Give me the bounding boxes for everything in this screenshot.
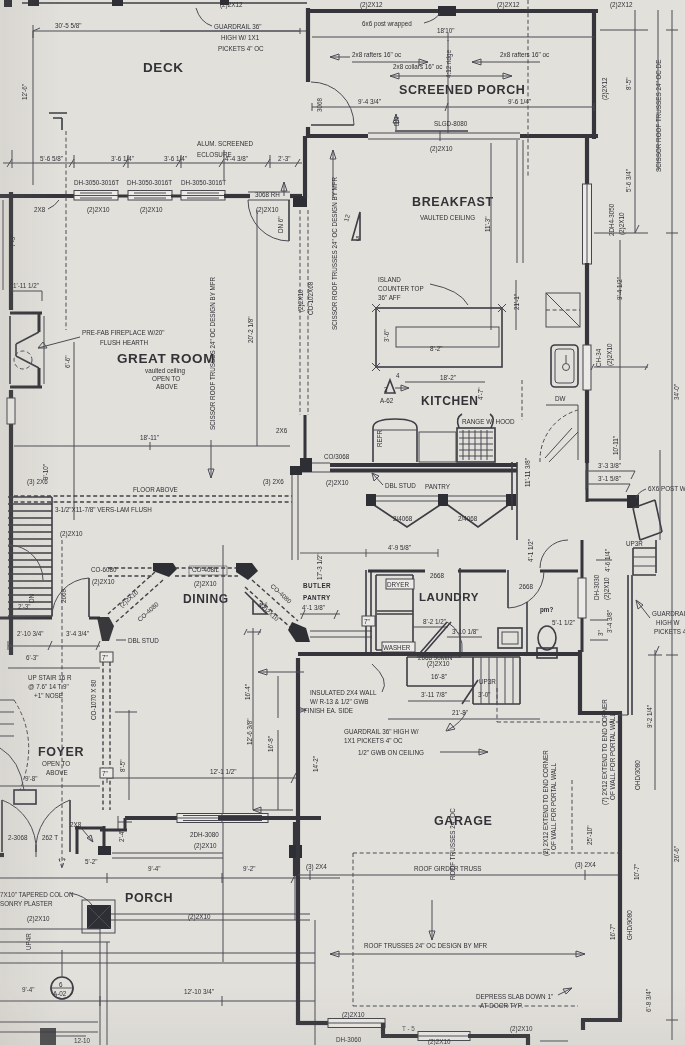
svg-text:3": 3" <box>597 630 604 636</box>
svg-text:KITCHEN: KITCHEN <box>421 394 479 408</box>
svg-text:PORCH: PORCH <box>125 891 173 905</box>
svg-text:(2)2X12: (2)2X12 <box>610 1 633 9</box>
svg-text:3'-6 1/4": 3'-6 1/4" <box>111 155 134 162</box>
svg-text:16'-7": 16'-7" <box>609 924 616 940</box>
svg-text:3'-6": 3'-6" <box>383 329 390 342</box>
svg-text:(2)2X12: (2)2X12 <box>220 1 243 9</box>
svg-text:3'-3 3/8": 3'-3 3/8" <box>598 462 621 469</box>
svg-text:3'-4 3/8": 3'-4 3/8" <box>606 610 613 633</box>
svg-text:(2)2X10: (2)2X10 <box>60 530 83 538</box>
svg-text:CO-408lL: CO-408lL <box>192 566 219 573</box>
svg-text:3'-6 1/4": 3'-6 1/4" <box>164 155 187 162</box>
svg-text:UP3R: UP3R <box>479 678 496 685</box>
svg-text:SCISSOR ROOF TRUSSES 24" OC DE: SCISSOR ROOF TRUSSES 24" OC DESIGN BY MF… <box>209 276 216 430</box>
svg-text:PANTRY: PANTRY <box>425 483 451 490</box>
svg-text:25'-10": 25'-10" <box>586 825 593 845</box>
svg-text:3'-1 5/8": 3'-1 5/8" <box>598 475 621 482</box>
svg-text:2x8 rafters 16" oc: 2x8 rafters 16" oc <box>500 51 549 58</box>
svg-text:CO-6080: CO-6080 <box>91 566 117 573</box>
svg-text:5: 5 <box>356 235 360 242</box>
svg-text:(2)2X10: (2)2X10 <box>194 580 217 588</box>
svg-text:8'-5": 8'-5" <box>625 77 632 90</box>
svg-text:PANTRY: PANTRY <box>303 594 331 601</box>
svg-text:(3) 2X4: (3) 2X4 <box>575 861 596 869</box>
svg-text:16'-8": 16'-8" <box>267 736 274 752</box>
svg-text:12'-6 3/8": 12'-6 3/8" <box>246 718 253 745</box>
svg-text:ABOVE: ABOVE <box>156 383 178 390</box>
svg-text:OF WALL FOR PORTAL WALL: OF WALL FOR PORTAL WALL <box>609 712 616 800</box>
svg-text:20'-2 1/8": 20'-2 1/8" <box>247 316 254 343</box>
svg-text:26'-6": 26'-6" <box>673 846 680 862</box>
svg-text:DH-3050-3016T: DH-3050-3016T <box>181 179 226 186</box>
svg-text:W/ R-13 & 1/2" GWB: W/ R-13 & 1/2" GWB <box>310 698 369 705</box>
svg-text:34'-0": 34'-0" <box>673 384 680 400</box>
svg-text:BREAKFAST: BREAKFAST <box>412 195 494 209</box>
svg-text:45°: 45° <box>258 602 268 609</box>
svg-text:2/4068: 2/4068 <box>393 515 413 522</box>
svg-text:9'-2 1/4": 9'-2 1/4" <box>646 705 653 728</box>
svg-text:PRE-FAB FIREPLACE W/20": PRE-FAB FIREPLACE W/20" <box>82 329 164 336</box>
svg-text:5'-1 1/2": 5'-1 1/2" <box>552 619 575 626</box>
svg-text:3068: 3068 <box>316 97 323 112</box>
svg-text:SCREENED PORCH: SCREENED PORCH <box>399 83 525 97</box>
svg-text:BUTLER: BUTLER <box>303 582 331 589</box>
svg-text:4'-1 1/2": 4'-1 1/2" <box>527 539 534 562</box>
svg-text:OHD/3080: OHD/3080 <box>634 760 641 790</box>
svg-text:1/2" GWB ON CEILING: 1/2" GWB ON CEILING <box>358 749 424 756</box>
svg-text:SLGD-8080: SLGD-8080 <box>434 120 468 127</box>
svg-text:DH-3050-3016T: DH-3050-3016T <box>127 179 172 186</box>
svg-text:9'-2": 9'-2" <box>243 865 256 872</box>
svg-text:A-62: A-62 <box>380 397 394 404</box>
svg-text:OF WALL FOR PORTAL WALL: OF WALL FOR PORTAL WALL <box>550 762 557 850</box>
svg-text:1X1 PICKETS 4" OC: 1X1 PICKETS 4" OC <box>344 737 403 744</box>
svg-text:GUARDRAIL 36": GUARDRAIL 36" <box>214 23 262 30</box>
svg-text:FINISH EA. SIDE: FINISH EA. SIDE <box>304 707 353 714</box>
svg-text:(2)2X10: (2)2X10 <box>430 145 453 153</box>
svg-text:(2)2X10: (2)2X10 <box>87 206 110 214</box>
svg-text:FLUSH HEARTH: FLUSH HEARTH <box>100 339 149 346</box>
svg-text:8'-2": 8'-2" <box>430 345 443 352</box>
svg-text:ROOF TRUSSES 24" OC DESIGN BY: ROOF TRUSSES 24" OC DESIGN BY MFR <box>364 942 488 949</box>
svg-text:(2)2X10: (2)2X10 <box>427 660 450 668</box>
svg-text:2/4068: 2/4068 <box>458 515 478 522</box>
svg-text:9'-4": 9'-4" <box>148 865 161 872</box>
svg-text:4:12 ridge: 4:12 ridge <box>445 49 453 78</box>
svg-text:DBL STUD: DBL STUD <box>128 637 159 644</box>
svg-text:16'-4": 16'-4" <box>244 684 251 700</box>
svg-text:36" AFF: 36" AFF <box>378 294 401 301</box>
svg-text:18'-2": 18'-2" <box>440 374 456 381</box>
svg-text:12'-1 1/2": 12'-1 1/2" <box>210 768 237 775</box>
svg-text:DH-3050-3016T: DH-3050-3016T <box>74 179 119 186</box>
svg-text:(2)2X12: (2)2X12 <box>360 1 383 9</box>
svg-text:UP3R: UP3R <box>626 540 643 547</box>
svg-text:GUARDRAIL 36" HIGH W/: GUARDRAIL 36" HIGH W/ <box>344 728 419 735</box>
svg-text:2668: 2668 <box>519 583 534 590</box>
svg-text:(2)2X10: (2)2X10 <box>618 212 626 235</box>
svg-text:CO/3068: CO/3068 <box>324 453 350 460</box>
svg-text:4'-1 3/8": 4'-1 3/8" <box>302 604 325 611</box>
svg-text:(2)2X10: (2)2X10 <box>606 343 614 366</box>
svg-text:(2)2X10: (2)2X10 <box>92 578 115 586</box>
svg-text:DBL STUD: DBL STUD <box>385 482 416 489</box>
svg-text:2DH4-3050: 2DH4-3050 <box>608 203 615 236</box>
svg-text:9'-4 3/4": 9'-4 3/4" <box>358 98 381 105</box>
svg-text:(2)2X10: (2)2X10 <box>188 913 211 921</box>
svg-text:14'-2": 14'-2" <box>312 756 319 772</box>
svg-text:10'-11": 10'-11" <box>612 436 619 455</box>
svg-text:ROOF TRUSSES 24" OC: ROOF TRUSSES 24" OC <box>449 808 456 880</box>
svg-text:(2)2X12: (2)2X12 <box>497 1 520 9</box>
svg-text:SCISSOR ROOF TRUSSES 24" OC DE: SCISSOR ROOF TRUSSES 24" OC DESIGN BY MF… <box>331 176 338 330</box>
svg-text:CH-34: CH-34 <box>595 348 602 367</box>
svg-text:GARAGE: GARAGE <box>434 814 492 828</box>
svg-text:2X6: 2X6 <box>276 427 288 434</box>
svg-text:5'-6 3/4": 5'-6 3/4" <box>625 169 632 192</box>
svg-text:21'-1": 21'-1" <box>513 294 520 310</box>
svg-text:DECK: DECK <box>143 60 184 75</box>
svg-text:DRYER: DRYER <box>387 581 409 588</box>
svg-text:11'-11 3/8": 11'-11 3/8" <box>524 458 531 487</box>
svg-text:2x8 collars 16" oc: 2x8 collars 16" oc <box>393 63 443 70</box>
svg-text:2DH-3080: 2DH-3080 <box>190 831 219 838</box>
svg-text:COUNTER TOP: COUNTER TOP <box>378 285 424 292</box>
svg-text:2x8 rafters 16" oc: 2x8 rafters 16" oc <box>352 51 401 58</box>
svg-text:4'-4 3/8": 4'-4 3/8" <box>225 155 248 162</box>
svg-text:DH-3030: DH-3030 <box>593 574 600 600</box>
svg-text:9'-4 1/2": 9'-4 1/2" <box>616 277 623 300</box>
svg-text:(2)2X10: (2)2X10 <box>140 206 163 214</box>
svg-text:CO-102X68: CO-102X68 <box>307 281 314 315</box>
svg-text:6x6 post wrapped: 6x6 post wrapped <box>362 20 412 28</box>
svg-text:11'-3": 11'-3" <box>484 216 491 232</box>
svg-text:ALUM. SCREENED: ALUM. SCREENED <box>197 140 253 147</box>
svg-text:18'-11": 18'-11" <box>140 434 159 441</box>
svg-text:2X8: 2X8 <box>70 821 82 828</box>
svg-text:vaulted ceiling: vaulted ceiling <box>145 367 185 375</box>
svg-text:3'-11 7/8": 3'-11 7/8" <box>421 691 447 698</box>
svg-text:FLOOR ABOVE: FLOOR ABOVE <box>133 486 178 493</box>
svg-text:DN: DN <box>393 116 400 126</box>
svg-text:3'-0": 3'-0" <box>478 691 491 698</box>
svg-text:pm?: pm? <box>540 606 553 614</box>
svg-text:3-1/2"X11-7/8" VERS-LAM FLUSH: 3-1/2"X11-7/8" VERS-LAM FLUSH <box>55 506 152 513</box>
svg-text:ISLAND: ISLAND <box>378 276 401 283</box>
svg-text:ROOF GIRDER TRUSS: ROOF GIRDER TRUSS <box>414 865 481 872</box>
svg-text:GUARDRAIL: GUARDRAIL <box>652 610 685 617</box>
svg-text:(2)2X10: (2)2X10 <box>326 479 349 487</box>
svg-text:(2)2X12: (2)2X12 <box>601 77 609 100</box>
svg-text:DN 6": DN 6" <box>277 216 284 233</box>
svg-text:3'-4 3/4": 3'-4 3/4" <box>66 630 89 637</box>
svg-text:PICKETS 4: PICKETS 4 <box>654 628 685 635</box>
svg-text:GREAT ROOM: GREAT ROOM <box>117 351 215 366</box>
svg-text:4'-9 5/8": 4'-9 5/8" <box>388 544 411 551</box>
svg-text:2668: 2668 <box>430 572 445 579</box>
svg-text:OPEN TO: OPEN TO <box>152 375 180 382</box>
svg-text:8'-2 1/2": 8'-2 1/2" <box>423 618 446 625</box>
svg-text:8'-5": 8'-5" <box>119 759 126 772</box>
svg-text:RANGE W/ HOOD: RANGE W/ HOOD <box>462 418 515 425</box>
svg-text:(2)2X10: (2)2X10 <box>194 842 217 850</box>
svg-text:7": 7" <box>102 654 108 661</box>
svg-text:(2)2X10: (2)2X10 <box>297 289 305 312</box>
svg-text:DINING: DINING <box>183 592 229 606</box>
svg-text:7": 7" <box>364 618 370 625</box>
svg-text:3: 3 <box>384 386 388 393</box>
svg-text:7": 7" <box>102 770 108 777</box>
svg-text:4: 4 <box>396 372 400 379</box>
svg-text:PICKETS 4" OC: PICKETS 4" OC <box>218 45 264 52</box>
svg-text:REFR: REFR <box>376 429 383 447</box>
svg-text:(2) 2X12 EXTEND TO END CORNER: (2) 2X12 EXTEND TO END CORNER <box>542 750 550 856</box>
svg-text:2668: 2668 <box>60 588 67 603</box>
svg-text:5'-2": 5'-2" <box>85 858 98 865</box>
svg-text:(3) 2X6: (3) 2X6 <box>263 478 284 486</box>
svg-text:6'-6": 6'-6" <box>64 355 71 368</box>
svg-text:CO-1070 X 80: CO-1070 X 80 <box>90 679 97 720</box>
svg-text:10'-7": 10'-7" <box>633 864 640 880</box>
svg-text:DW: DW <box>555 395 566 402</box>
svg-text:VAULTED CEILING: VAULTED CEILING <box>420 214 475 221</box>
svg-text:HIGH W/ 1X1: HIGH W/ 1X1 <box>221 34 260 41</box>
svg-text:(2)2X10: (2)2X10 <box>603 577 611 600</box>
svg-text:LAUNDRY: LAUNDRY <box>419 591 479 603</box>
svg-text:4'-7": 4'-7" <box>477 387 484 400</box>
svg-text:2'-3": 2'-3" <box>278 155 291 162</box>
svg-text:(7) 2X12 EXTEND TO END CORNER: (7) 2X12 EXTEND TO END CORNER <box>601 699 609 805</box>
svg-text:17'-3 1/2": 17'-3 1/2" <box>316 553 323 580</box>
svg-text:(2)2X10: (2)2X10 <box>256 206 279 214</box>
svg-text:WASHER: WASHER <box>383 644 411 651</box>
svg-text:(3) 2X4: (3) 2X4 <box>306 863 327 871</box>
svg-text:18'10": 18'10" <box>437 27 454 34</box>
svg-text:GHD/9080: GHD/9080 <box>626 910 633 940</box>
svg-text:6X6 POST W: 6X6 POST W <box>648 485 685 492</box>
svg-text:INSULATED 2X4 WALL: INSULATED 2X4 WALL <box>310 689 377 696</box>
svg-text:16'-8": 16'-8" <box>431 673 447 680</box>
svg-text:HIGH W: HIGH W <box>656 619 679 626</box>
